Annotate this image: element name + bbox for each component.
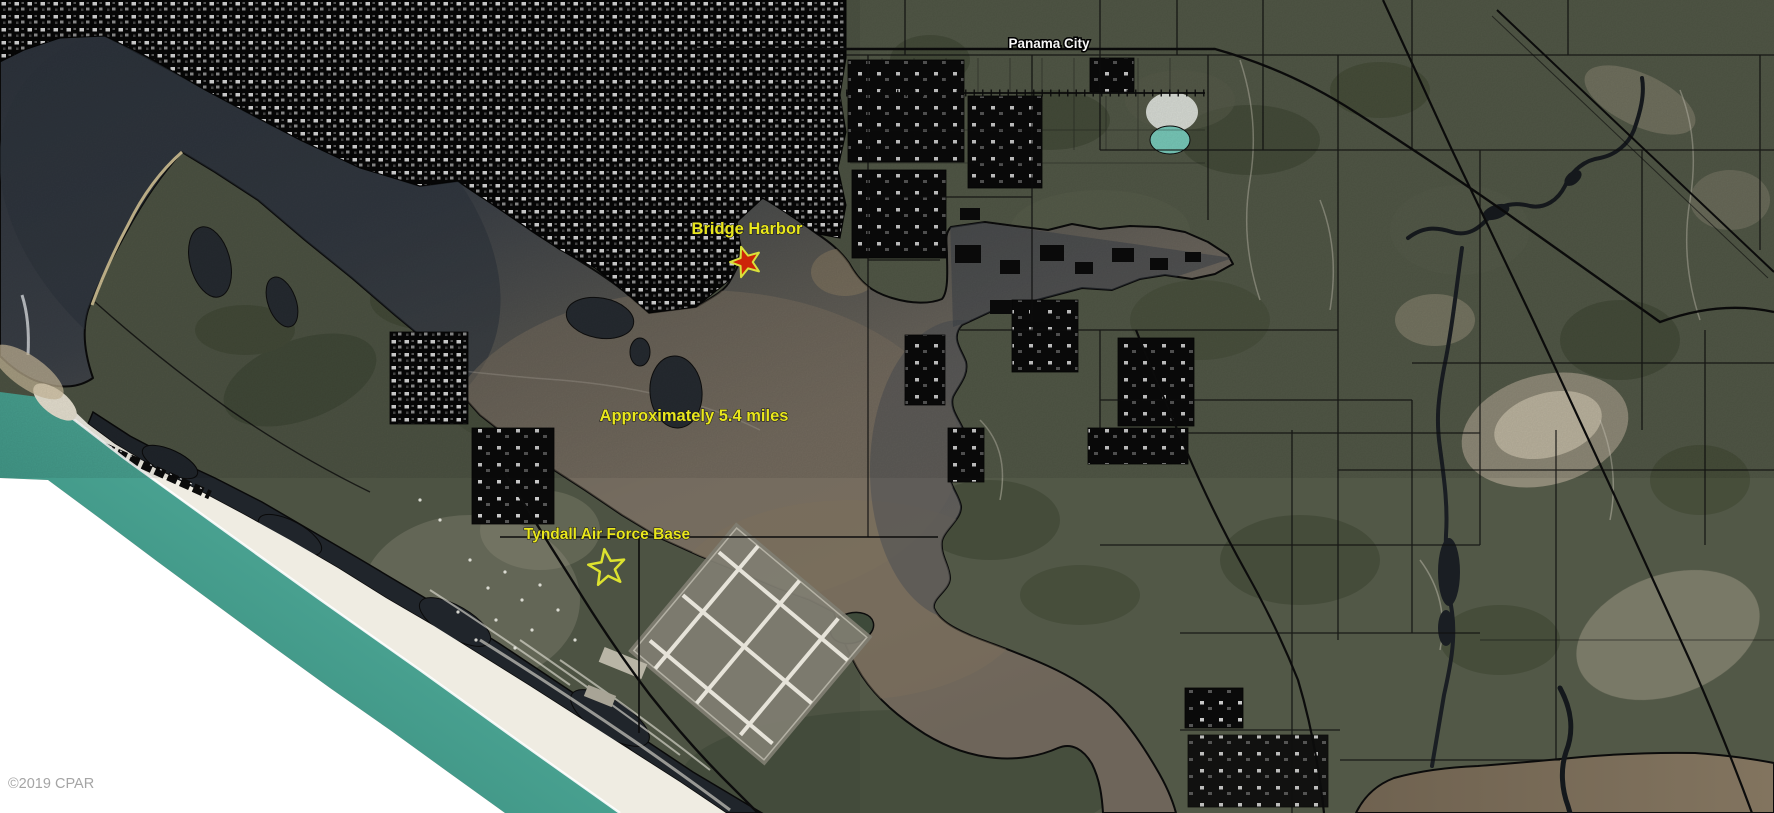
copyright-watermark: ©2019 CPAR bbox=[8, 776, 94, 792]
panama-city-label: Panama City bbox=[1008, 36, 1090, 51]
bridge-harbor-label: Bridge Harbor bbox=[692, 220, 804, 238]
satellite-map: Panama City Bridge Harbor Approximately … bbox=[0, 0, 1774, 813]
distance-label: Approximately 5.4 miles bbox=[600, 407, 789, 425]
listing-map-photo: Panama City Bridge Harbor Approximately … bbox=[0, 0, 1774, 813]
tyndall-afb-label: Tyndall Air Force Base bbox=[524, 526, 691, 543]
photo-grain bbox=[0, 0, 1774, 478]
